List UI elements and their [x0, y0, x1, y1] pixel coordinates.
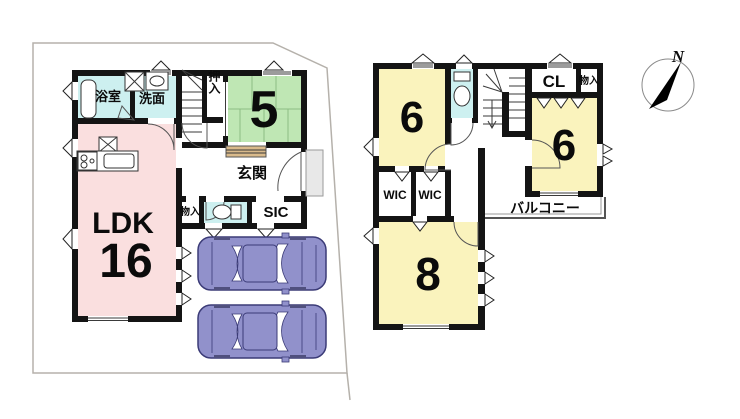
label-sic: SIC: [263, 204, 288, 221]
label-wic-right: WIC: [418, 188, 442, 202]
label-wic-left: WIC: [383, 188, 407, 202]
toilet1-tank: [231, 205, 241, 219]
label-storage-2f: 物入: [579, 74, 599, 87]
toilet2-bowl: [454, 86, 470, 106]
car2-mirror-bottom: [282, 357, 289, 362]
label-balcony: バルコニー: [510, 200, 580, 216]
toilet1-bowl: [213, 205, 231, 219]
front-door-arc: [278, 152, 301, 191]
kitchen-sink: [104, 154, 134, 168]
stove-burner-2: [81, 162, 87, 168]
label-bedroom6-left: 6: [400, 93, 424, 142]
label-oshiire: 押入: [207, 69, 221, 95]
car1-mirror-top: [282, 233, 289, 238]
compass-north-label: N: [671, 47, 685, 66]
label-bedroom8: 8: [415, 248, 441, 300]
floor-plan-page: N 浴室 洗面 押入 5 玄関 物入 SIC LDK 16 6 CL 物入 6 …: [0, 0, 740, 419]
car2-roof: [243, 313, 277, 350]
car1-mirror-bottom: [282, 289, 289, 294]
label-storage-1f: 物入: [180, 205, 200, 218]
floor-plan-drawing: N 浴室 洗面 押入 5 玄関 物入 SIC LDK 16 6 CL 物入 6 …: [0, 0, 740, 419]
toilet2-door-arc: [451, 123, 473, 145]
washbasin-bowl: [150, 76, 164, 86]
bathtub: [81, 80, 96, 118]
label-entrance: 玄関: [237, 164, 267, 182]
compass: N: [642, 47, 694, 111]
boundary-extension-line: [347, 373, 350, 400]
compass-needle: [649, 62, 681, 109]
stove-burner-1: [81, 155, 87, 161]
entrance-porch: [306, 150, 323, 196]
label-ldk-size: 16: [99, 235, 152, 288]
label-washroom: 洗面: [139, 91, 165, 106]
car-1: [198, 233, 326, 294]
label-cl: CL: [543, 72, 566, 91]
car-2: [198, 301, 326, 362]
stair2-down-arrow: [488, 100, 496, 128]
toilet2-tank: [454, 72, 470, 81]
label-bedroom6-right: 6: [552, 121, 576, 170]
staircase-floor1: [182, 70, 202, 132]
stair1-treads: [182, 70, 202, 132]
label-tatami-size: 5: [250, 81, 279, 139]
car1-roof: [243, 245, 277, 282]
label-bathroom: 浴室: [95, 89, 121, 104]
car2-mirror-top: [282, 301, 289, 306]
stove-burner-3: [90, 159, 94, 163]
entrance-step: [226, 146, 266, 157]
